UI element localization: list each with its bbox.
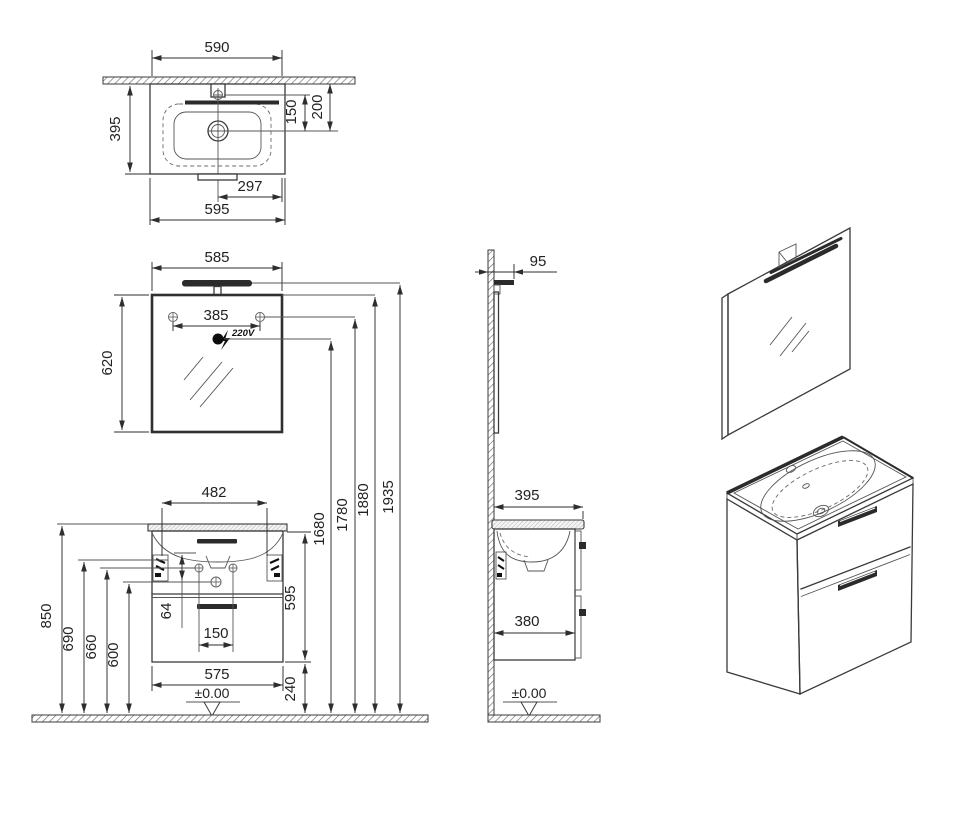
drawer-front-top-side [575,531,581,590]
dim-label-240: 240 [282,676,299,701]
mirror-3d-thickness [722,294,728,439]
drawer-front-bottom-side [575,596,581,658]
drain-3d-inner [816,507,825,515]
dim-basin-depth: 395 [107,86,150,174]
dim-basin-width-total: 595 [150,178,285,225]
countertop-side [492,520,584,529]
drawer-gap-3d-b [801,555,910,597]
counter-edge-right [797,478,913,540]
mounting-bracket-side [496,552,506,579]
vanity-3d [727,436,913,694]
dim-tap-to-drain: 150 [283,95,305,131]
dim-body-height: 595 [282,532,311,662]
floor-section-front [32,715,428,722]
dim-label-1780: 1780 [334,498,351,531]
mirror-screw-right-icon [256,313,265,322]
dim-counter-height: 850 [38,524,148,713]
drawer-handle [197,604,237,609]
wall-section [103,77,355,84]
drain-3d-outer [812,503,831,519]
dim-label-850: 850 [38,603,55,628]
vanity-set-dimension-drawing: 590 395 150 200 297 595 [0,0,960,816]
mirror-3d [722,228,850,439]
dim-label-690: 690 [60,626,77,651]
power-outlet-icon [213,334,224,345]
perspective-view [722,228,913,694]
outlet-voltage-label: 220V [231,328,255,339]
dim-label-660: 660 [83,634,100,659]
drain-holes [195,564,237,587]
dim-label-575: 575 [204,666,229,683]
dim-body-depth: 380 [494,613,575,633]
dim-counter-depth: 395 [494,487,583,519]
dim-label-600: 600 [105,642,122,667]
front-overflow-tab [198,174,237,180]
dim-label-150-top: 150 [283,99,300,124]
dim-label-1680: 1680 [311,512,328,545]
floor-level-label-side: ±0.00 [512,685,547,701]
dim-label-1880: 1880 [355,483,372,516]
dim-mirror-height: 620 [99,295,149,432]
mirror-front-view: 220V 585 620 385 [99,249,282,432]
dim-label-95: 95 [530,253,547,270]
dim-label-297: 297 [237,178,262,195]
countertop-front [148,524,287,531]
datum-triangle-side [521,702,537,716]
dim-label-395-side: 395 [514,487,539,504]
counter-right-rim [843,437,913,478]
bowl-3d-outer [751,436,885,536]
datum-triangle-front [204,702,220,716]
counter-inner-rim [734,441,906,529]
dim-label-395-top: 395 [107,116,124,141]
dim-label-620: 620 [99,350,116,375]
dim-label-200: 200 [309,94,326,119]
light-fixture [182,280,252,287]
technical-drawing-page: 590 395 150 200 297 595 [0,0,960,816]
dim-label-482: 482 [201,484,226,501]
side-view: 95 395 380 ±0.00 [475,250,600,722]
basin-top-view: 590 395 150 200 297 595 [103,39,355,225]
dim-label-385: 385 [203,307,228,324]
dim-holes-height: 660 [83,568,195,713]
dim-wall-to-drain: 200 [309,84,330,131]
basin-profile-dashed [500,533,531,557]
cabinet-body [152,531,283,662]
dim-label-595-top: 595 [204,201,229,218]
dim-label-380: 380 [514,613,539,630]
mirror-screw-left-icon [169,313,178,322]
dim-label-590: 590 [204,39,229,56]
dim-hole-offset: 64 [158,553,196,628]
dim-label-150-front: 150 [203,625,228,642]
basin-profile [497,531,570,562]
mounting-bracket-right [267,555,282,581]
wall-section-side [488,250,494,715]
overflow-3d [802,483,810,490]
floor-level-side: ±0.00 [503,685,557,716]
cabinet-front-view: 482 850 690 660 600 64 [32,484,428,722]
handle-top-side [579,542,586,549]
counter-back-rim [727,437,843,493]
dim-bracket-span: 482 [162,484,267,556]
dim-basin-width-top: 590 [152,39,282,76]
light-fixture-side [494,280,514,285]
dim-light-depth: 95 [475,253,557,279]
dim-bottom-clearance: 240 [282,664,305,713]
handle-3d-top [838,506,877,527]
dim-label-585: 585 [204,249,229,266]
light-fixture-3d [766,239,841,282]
cabinet-3d-side-face [727,499,800,694]
floor-level-label-front: ±0.00 [195,685,230,701]
mirror-3d-panel [728,228,850,435]
dim-label-64: 64 [158,603,175,620]
mirror-side [494,292,499,433]
floor-section-side [488,715,600,722]
dim-center-to-right: 297 [218,178,282,202]
basin-curve [152,533,283,562]
handle-bottom-side [579,609,586,616]
backsplash-bar [185,101,279,105]
dim-label-595-front: 595 [282,585,299,610]
dim-label-1935: 1935 [380,480,397,513]
floor-level-front: ±0.00 [186,685,240,716]
overflow-slot [197,539,237,544]
bowl-inner [174,112,261,159]
